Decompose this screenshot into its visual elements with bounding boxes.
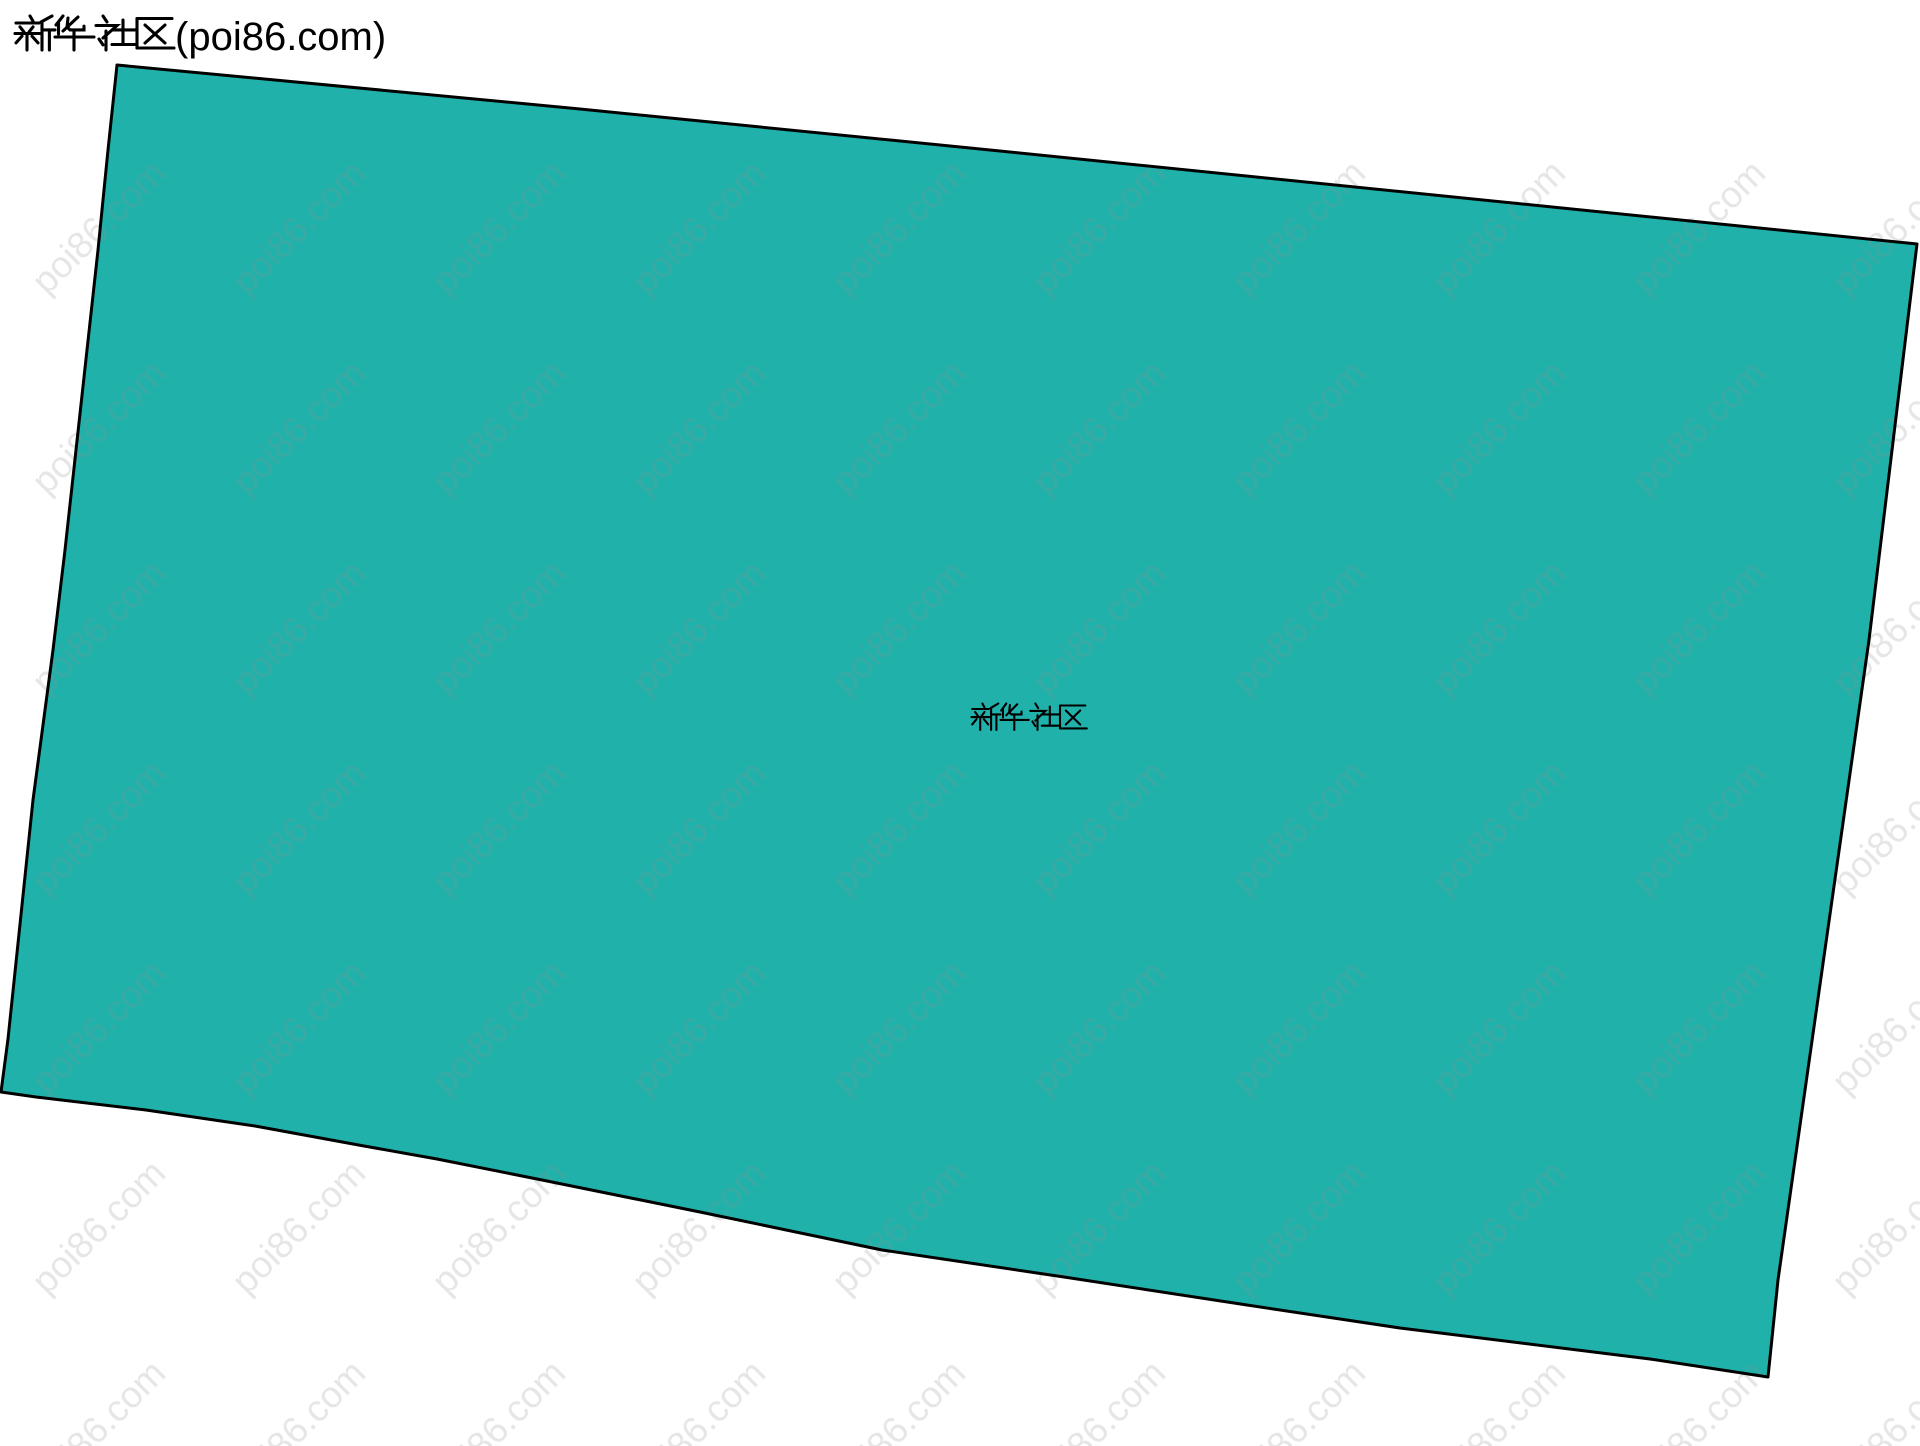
svg-text:poi86.com: poi86.com <box>1424 1352 1574 1446</box>
svg-text:poi86.com: poi86.com <box>24 1352 174 1446</box>
svg-text:poi86.com: poi86.com <box>424 1352 574 1446</box>
svg-text:poi86.com: poi86.com <box>224 1352 374 1446</box>
svg-text:poi86.com: poi86.com <box>224 1152 374 1302</box>
svg-text:poi86.com: poi86.com <box>424 1152 574 1302</box>
svg-text:poi86.com: poi86.com <box>1824 1352 1920 1446</box>
svg-text:poi86.com: poi86.com <box>1224 1352 1374 1446</box>
svg-text:poi86.com: poi86.com <box>1024 1352 1174 1446</box>
svg-text:poi86.com: poi86.com <box>624 1352 774 1446</box>
svg-text:(poi86.com): (poi86.com) <box>175 15 386 59</box>
svg-text:poi86.com: poi86.com <box>1824 952 1920 1102</box>
svg-text:poi86.com: poi86.com <box>1824 1152 1920 1302</box>
svg-text:poi86.com: poi86.com <box>824 1352 974 1446</box>
svg-text:poi86.com: poi86.com <box>24 1152 174 1302</box>
